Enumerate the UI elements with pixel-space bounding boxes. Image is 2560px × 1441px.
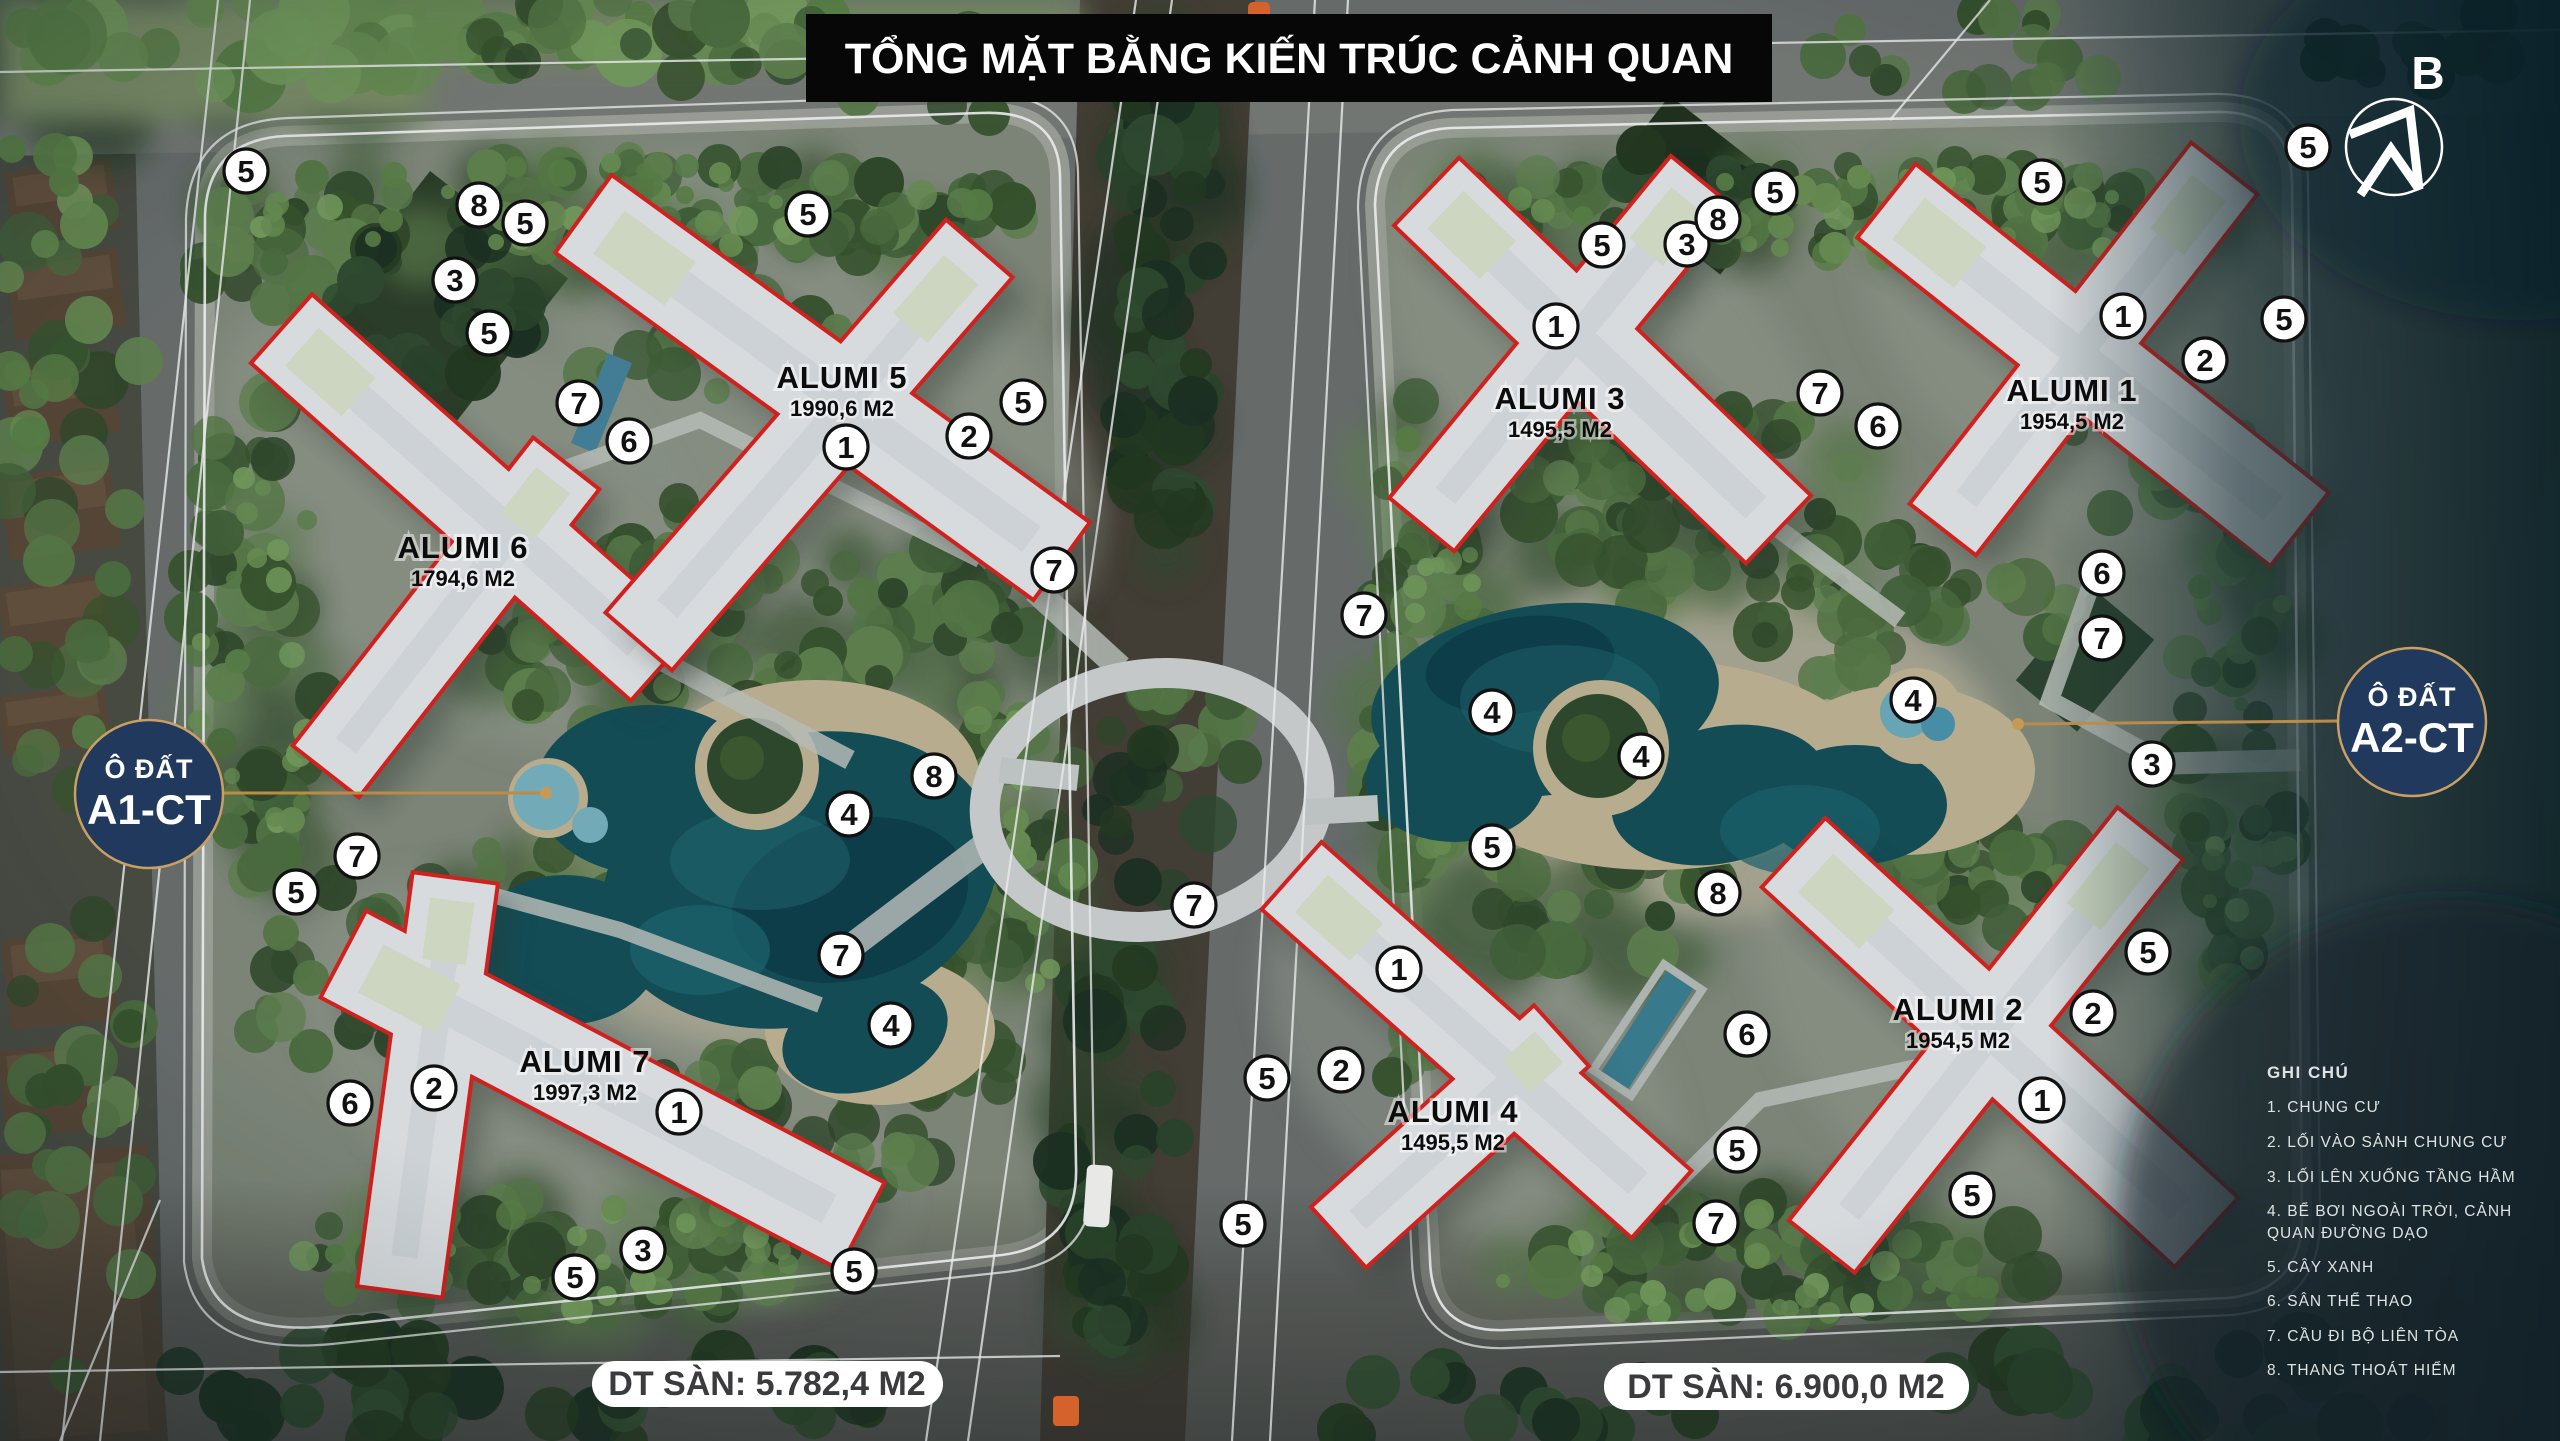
svg-text:6: 6 [2093,556,2110,591]
svg-text:7: 7 [570,386,587,421]
svg-text:4: 4 [1483,695,1501,730]
svg-text:7: 7 [1355,598,1372,633]
svg-text:7: 7 [1811,376,1828,411]
svg-text:B: B [2411,47,2444,99]
svg-text:1954,5 M2: 1954,5 M2 [1906,1028,2010,1053]
svg-text:5: 5 [2139,935,2156,970]
svg-text:1495,5 M2: 1495,5 M2 [1508,417,1612,442]
svg-text:8: 8 [1709,876,1726,911]
svg-text:3. LỐI LÊN XUỐNG TẦNG HẦM: 3. LỐI LÊN XUỐNG TẦNG HẦM [2267,1168,2516,1186]
svg-text:5: 5 [2275,302,2292,337]
svg-text:7: 7 [2093,621,2110,656]
svg-text:1: 1 [2114,299,2131,334]
svg-text:1990,6 M2: 1990,6 M2 [790,396,894,421]
svg-text:TỔNG MẶT BẰNG KIẾN TRÚC CẢNH Q: TỔNG MẶT BẰNG KIẾN TRÚC CẢNH QUAN [845,33,1734,83]
svg-text:5: 5 [1766,175,1783,210]
svg-text:QUAN ĐƯỜNG DẠO: QUAN ĐƯỜNG DẠO [2267,1225,2429,1242]
svg-text:ALUMI 6: ALUMI 6 [398,530,529,565]
svg-text:5: 5 [2299,130,2316,165]
svg-text:1: 1 [1390,952,1407,987]
svg-text:2: 2 [2196,343,2213,378]
svg-text:5: 5 [237,154,254,189]
svg-text:A2-CT: A2-CT [2350,714,2474,761]
svg-text:8. THANG THOÁT HIỂM: 8. THANG THOÁT HIỂM [2267,1361,2457,1379]
svg-text:GHI CHÚ: GHI CHÚ [2267,1063,2349,1082]
svg-text:4: 4 [882,1008,900,1043]
svg-text:1: 1 [837,430,854,465]
svg-text:7: 7 [1707,1206,1724,1241]
svg-text:ALUMI 7: ALUMI 7 [520,1044,651,1079]
svg-text:2: 2 [960,419,977,454]
svg-text:6: 6 [341,1086,358,1121]
svg-text:Ô ĐẤT: Ô ĐẤT [105,753,194,784]
svg-text:ALUMI 2: ALUMI 2 [1893,992,2024,1027]
svg-text:5: 5 [1014,385,1031,420]
svg-text:6: 6 [1738,1017,1755,1052]
svg-text:5. CÂY XANH: 5. CÂY XANH [2267,1259,2374,1276]
svg-text:7: 7 [348,839,365,874]
svg-text:4: 4 [840,797,858,832]
svg-text:2. LỐI VÀO SẢNH CHUNG CƯ: 2. LỐI VÀO SẢNH CHUNG CƯ [2267,1133,2508,1151]
svg-text:5: 5 [1963,1178,1980,1213]
svg-text:3: 3 [2143,747,2160,782]
svg-text:3: 3 [634,1233,651,1268]
svg-text:1954,5 M2: 1954,5 M2 [2020,409,2124,434]
svg-text:5: 5 [1258,1061,1275,1096]
svg-text:6: 6 [1869,409,1886,444]
svg-text:3: 3 [1678,227,1695,262]
svg-text:6. SÂN THỂ THAO: 6. SÂN THỂ THAO [2267,1292,2413,1310]
svg-text:2: 2 [425,1071,442,1106]
svg-text:1997,3 M2: 1997,3 M2 [533,1080,637,1105]
svg-text:A1-CT: A1-CT [87,786,211,833]
svg-text:ALUMI 1: ALUMI 1 [2007,373,2138,408]
svg-text:2: 2 [1332,1053,1349,1088]
svg-text:ALUMI 4: ALUMI 4 [1388,1094,1519,1129]
svg-text:7: 7 [1045,553,1062,588]
svg-text:5: 5 [566,1260,583,1295]
svg-text:7: 7 [1185,888,1202,923]
svg-text:1: 1 [2033,1083,2050,1118]
svg-text:5: 5 [799,197,816,232]
svg-text:DT SÀN: 5.782,4 M2: DT SÀN: 5.782,4 M2 [608,1365,925,1403]
svg-text:ALUMI 5: ALUMI 5 [777,360,908,395]
svg-text:5: 5 [1593,228,1610,263]
svg-text:5: 5 [845,1254,862,1289]
svg-text:7: 7 [832,938,849,973]
svg-text:1: 1 [1547,309,1564,344]
svg-text:5: 5 [1483,830,1500,865]
svg-text:6: 6 [620,424,637,459]
svg-text:DT SÀN: 6.900,0 M2: DT SÀN: 6.900,0 M2 [1627,1368,1944,1406]
svg-text:8: 8 [1709,202,1726,237]
svg-text:1. CHUNG CƯ: 1. CHUNG CƯ [2267,1099,2381,1116]
svg-text:ALUMI 3: ALUMI 3 [1495,381,1626,416]
svg-text:4: 4 [1904,683,1922,718]
svg-text:1: 1 [670,1095,687,1130]
svg-text:1495,5 M2: 1495,5 M2 [1401,1130,1505,1155]
svg-text:4. BỂ BƠI NGOÀI TRỜI, CẢNH: 4. BỂ BƠI NGOÀI TRỜI, CẢNH [2267,1202,2512,1220]
svg-text:8: 8 [925,759,942,794]
svg-text:1794,6 M2: 1794,6 M2 [411,566,515,591]
svg-text:5: 5 [480,316,497,351]
svg-text:8: 8 [470,188,487,223]
svg-text:7. CẦU ĐI BỘ LIÊN TÒA: 7. CẦU ĐI BỘ LIÊN TÒA [2267,1328,2459,1345]
svg-text:5: 5 [2033,165,2050,200]
svg-text:2: 2 [2084,996,2101,1031]
svg-text:5: 5 [516,206,533,241]
svg-text:4: 4 [1632,739,1650,774]
svg-text:Ô ĐẤT: Ô ĐẤT [2368,681,2457,712]
svg-text:5: 5 [287,875,304,910]
svg-text:5: 5 [1728,1133,1745,1168]
svg-text:3: 3 [446,263,463,298]
svg-text:5: 5 [1234,1207,1251,1242]
